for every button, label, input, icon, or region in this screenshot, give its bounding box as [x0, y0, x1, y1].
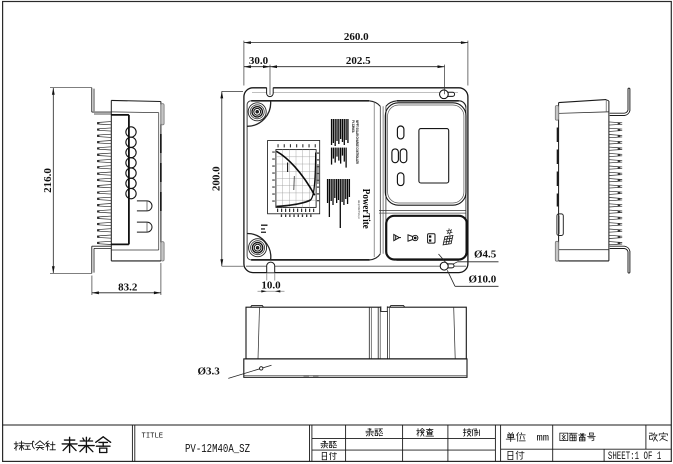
svg-text:200.0: 200.0 — [210, 166, 222, 191]
svg-text:SHEET:1 OF 1: SHEET:1 OF 1 — [608, 451, 662, 463]
svg-text:PV-12M40A_SZ: PV-12M40A_SZ — [185, 442, 250, 456]
svg-text:Ø4.5: Ø4.5 — [474, 248, 497, 260]
svg-text:MPPT SOLAR CHARGE CONTROLLER: MPPT SOLAR CHARGE CONTROLLER — [355, 120, 359, 164]
svg-text:Ø10.0: Ø10.0 — [469, 273, 497, 285]
svg-text:PowerTite: PowerTite — [360, 189, 372, 229]
svg-text:216.0: 216.0 — [42, 168, 54, 193]
svg-text:10.0: 10.0 — [261, 280, 281, 292]
svg-text:TITLE: TITLE — [142, 432, 164, 440]
svg-text:202.5: 202.5 — [346, 55, 371, 67]
svg-text:Made by POWER TITE Co.,Ltd.: Made by POWER TITE Co.,Ltd. — [357, 200, 361, 219]
svg-text:PV-12M40A: PV-12M40A — [351, 120, 355, 132]
svg-text:83.2: 83.2 — [118, 281, 138, 293]
svg-text:Ø3.3: Ø3.3 — [198, 365, 221, 377]
svg-text:260.0: 260.0 — [344, 31, 369, 43]
svg-text:mm: mm — [537, 433, 550, 445]
svg-text:30.0: 30.0 — [249, 55, 269, 67]
